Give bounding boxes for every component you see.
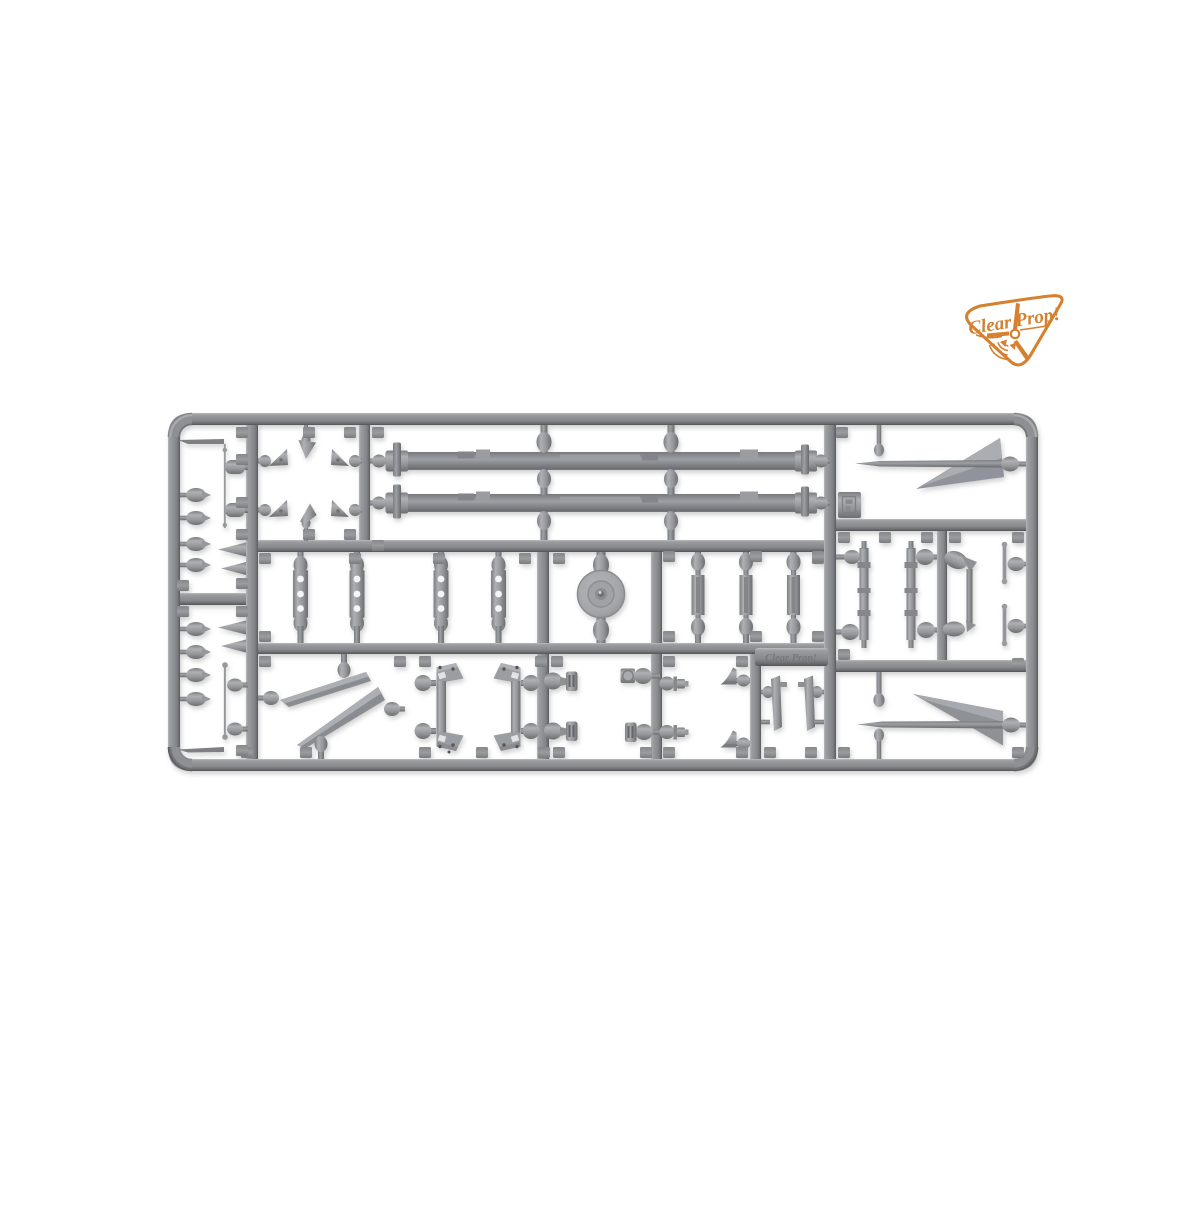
svg-text:Clear Prop!: Clear Prop! (765, 653, 817, 664)
